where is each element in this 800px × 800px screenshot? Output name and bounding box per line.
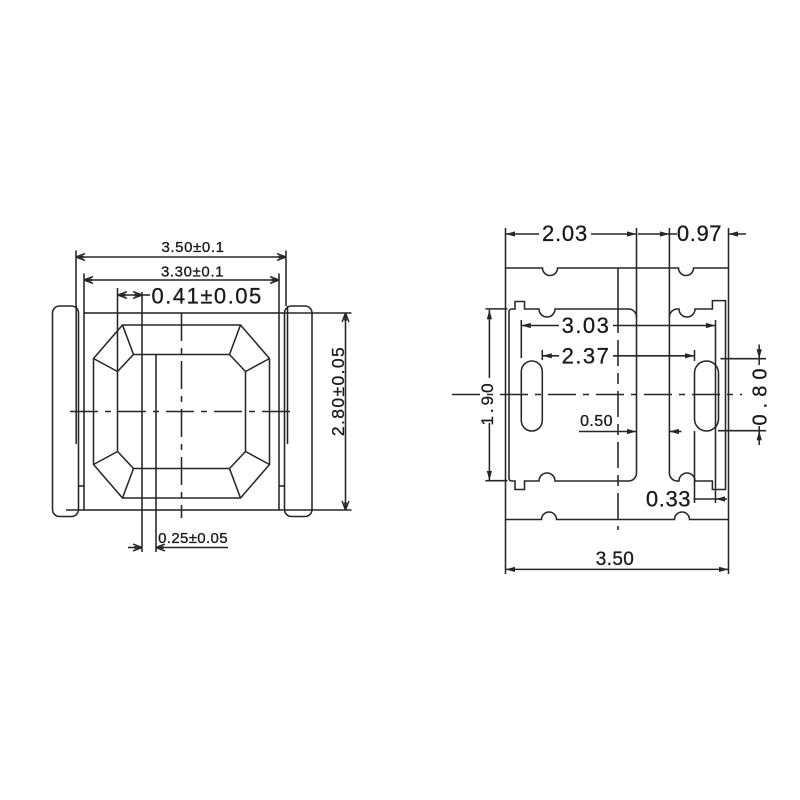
svg-text:1.90: 1.90 <box>478 380 497 425</box>
svg-text:3.03: 3.03 <box>562 313 611 338</box>
svg-text:2.37: 2.37 <box>562 344 611 369</box>
svg-text:3.50: 3.50 <box>596 549 634 570</box>
svg-text:0.97: 0.97 <box>677 221 722 246</box>
svg-text:2.03: 2.03 <box>542 221 588 246</box>
svg-text:0.80: 0.80 <box>750 363 772 426</box>
svg-text:3.30±0.1: 3.30±0.1 <box>161 263 224 280</box>
svg-text:3.50±0.1: 3.50±0.1 <box>161 239 224 256</box>
svg-text:0.50: 0.50 <box>580 413 613 430</box>
svg-text:2.80±0.05: 2.80±0.05 <box>328 346 348 436</box>
svg-text:0.25±0.05: 0.25±0.05 <box>158 530 228 547</box>
svg-text:0.41±0.05: 0.41±0.05 <box>152 284 263 309</box>
svg-text:0.33: 0.33 <box>646 487 691 512</box>
